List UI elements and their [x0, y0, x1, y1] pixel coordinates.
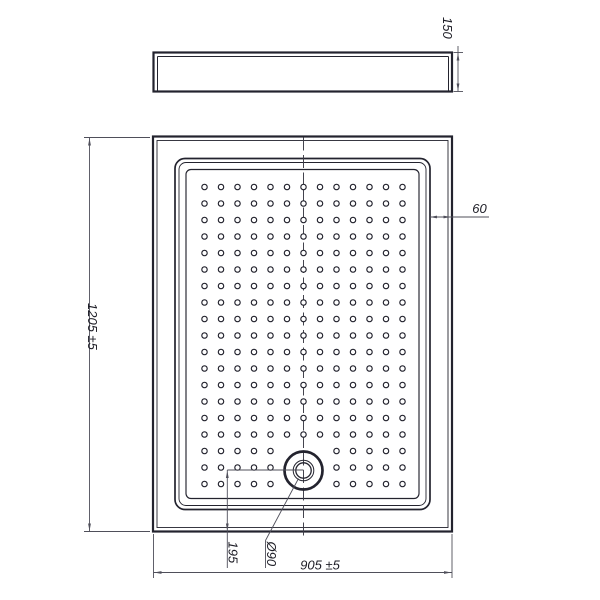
- anti-slip-dot: [202, 250, 207, 255]
- anti-slip-dot: [218, 184, 223, 189]
- anti-slip-dot: [334, 217, 339, 222]
- anti-slip-dot: [235, 399, 240, 404]
- anti-slip-dot: [383, 316, 388, 321]
- anti-slip-dot: [284, 234, 289, 239]
- anti-slip-dot: [268, 465, 273, 470]
- anti-slip-dot: [218, 366, 223, 371]
- anti-slip-dot: [218, 316, 223, 321]
- anti-slip-dot: [350, 382, 355, 387]
- anti-slip-dot: [317, 283, 322, 288]
- anti-slip-dot: [202, 382, 207, 387]
- anti-slip-dot: [251, 432, 256, 437]
- anti-slip-dot: [350, 432, 355, 437]
- length-label: 1205 ±5: [85, 303, 100, 351]
- anti-slip-dot: [268, 234, 273, 239]
- anti-slip-dot: [367, 382, 372, 387]
- anti-slip-dot: [350, 201, 355, 206]
- anti-slip-dot: [268, 349, 273, 354]
- anti-slip-dot: [350, 399, 355, 404]
- anti-slip-dot: [334, 481, 339, 486]
- dimension-905: 905 ±5: [154, 534, 453, 578]
- anti-slip-dot: [284, 366, 289, 371]
- anti-slip-dot: [218, 300, 223, 305]
- anti-slip-dot: [383, 448, 388, 453]
- anti-slip-dot: [235, 333, 240, 338]
- anti-slip-dot: [383, 217, 388, 222]
- anti-slip-dot: [367, 448, 372, 453]
- anti-slip-dot: [301, 432, 306, 437]
- anti-slip-dot: [251, 415, 256, 420]
- anti-slip-dot: [284, 283, 289, 288]
- anti-slip-dot: [334, 366, 339, 371]
- arrowhead-down: [88, 524, 91, 532]
- drain-diameter-label: Ø90: [264, 541, 279, 567]
- anti-slip-dot: [235, 267, 240, 272]
- anti-slip-dot: [268, 415, 273, 420]
- anti-slip-dot: [400, 349, 405, 354]
- anti-slip-dot: [251, 250, 256, 255]
- anti-slip-dot: [317, 250, 322, 255]
- anti-slip-dot: [350, 184, 355, 189]
- anti-slip-dot: [383, 465, 388, 470]
- anti-slip-dot: [218, 432, 223, 437]
- anti-slip-dot: [268, 448, 273, 453]
- anti-slip-dot: [202, 217, 207, 222]
- anti-slip-dot: [383, 250, 388, 255]
- anti-slip-dot: [202, 448, 207, 453]
- anti-slip-dot: [367, 234, 372, 239]
- anti-slip-dot: [334, 415, 339, 420]
- anti-slip-dot: [218, 234, 223, 239]
- anti-slip-dot: [334, 316, 339, 321]
- anti-slip-dot: [202, 432, 207, 437]
- anti-slip-dot: [284, 432, 289, 437]
- anti-slip-dot: [334, 349, 339, 354]
- anti-slip-dot: [202, 465, 207, 470]
- anti-slip-dot: [202, 283, 207, 288]
- anti-slip-dot: [301, 399, 306, 404]
- anti-slip-dot: [301, 201, 306, 206]
- anti-slip-dot: [400, 399, 405, 404]
- anti-slip-dot: [268, 432, 273, 437]
- anti-slip-dot: [235, 415, 240, 420]
- anti-slip-dot: [235, 201, 240, 206]
- anti-slip-dot: [334, 465, 339, 470]
- side-height-label: 150: [440, 17, 455, 39]
- anti-slip-dot: [367, 184, 372, 189]
- anti-slip-dot: [350, 267, 355, 272]
- anti-slip-dot: [367, 300, 372, 305]
- anti-slip-dot: [400, 234, 405, 239]
- anti-slip-dot: [235, 481, 240, 486]
- anti-slip-dot: [235, 283, 240, 288]
- anti-slip-dot: [235, 234, 240, 239]
- anti-slip-dot: [334, 184, 339, 189]
- anti-slip-dot: [367, 316, 372, 321]
- anti-slip-dot: [202, 316, 207, 321]
- anti-slip-dot: [317, 201, 322, 206]
- anti-slip-dot: [284, 349, 289, 354]
- anti-slip-dot: [284, 399, 289, 404]
- anti-slip-dot: [350, 448, 355, 453]
- anti-slip-dot: [284, 184, 289, 189]
- anti-slip-dot: [251, 366, 256, 371]
- anti-slip-dot: [268, 333, 273, 338]
- anti-slip-dot: [400, 300, 405, 305]
- anti-slip-dot: [218, 349, 223, 354]
- anti-slip-dot: [301, 250, 306, 255]
- anti-slip-dot: [202, 481, 207, 486]
- arrowhead-left: [154, 571, 162, 574]
- anti-slip-dot: [317, 184, 322, 189]
- anti-slip-dot: [350, 366, 355, 371]
- anti-slip-dot: [334, 201, 339, 206]
- anti-slip-dot: [218, 399, 223, 404]
- anti-slip-dot: [334, 234, 339, 239]
- anti-slip-dot: [251, 283, 256, 288]
- anti-slip-dot: [251, 481, 256, 486]
- anti-slip-dot: [251, 217, 256, 222]
- anti-slip-dot: [350, 481, 355, 486]
- anti-slip-dot: [367, 283, 372, 288]
- anti-slip-dot: [400, 184, 405, 189]
- anti-slip-dot: [235, 300, 240, 305]
- anti-slip-dot: [317, 217, 322, 222]
- side-view: 150: [154, 17, 464, 92]
- anti-slip-dot: [251, 349, 256, 354]
- anti-slip-dot: [400, 217, 405, 222]
- anti-slip-dot: [268, 267, 273, 272]
- anti-slip-dot: [202, 349, 207, 354]
- anti-slip-dot: [268, 201, 273, 206]
- anti-slip-dot: [235, 184, 240, 189]
- anti-slip-dot: [400, 448, 405, 453]
- side-view-outline: [154, 53, 453, 92]
- anti-slip-dot: [251, 300, 256, 305]
- anti-slip-dot: [251, 382, 256, 387]
- anti-slip-dot: [301, 283, 306, 288]
- anti-slip-dot: [317, 366, 322, 371]
- anti-slip-dot: [268, 481, 273, 486]
- anti-slip-dot: [251, 465, 256, 470]
- anti-slip-dot: [268, 217, 273, 222]
- anti-slip-dot: [350, 415, 355, 420]
- anti-slip-dot: [284, 333, 289, 338]
- anti-slip-dot: [367, 399, 372, 404]
- anti-slip-dot: [350, 234, 355, 239]
- anti-slip-dot: [350, 465, 355, 470]
- anti-slip-dot: [301, 382, 306, 387]
- anti-slip-dot: [235, 448, 240, 453]
- anti-slip-dot: [367, 432, 372, 437]
- anti-slip-dot: [383, 300, 388, 305]
- anti-slip-dot: [268, 184, 273, 189]
- anti-slip-dot: [251, 448, 256, 453]
- anti-slip-dot: [400, 382, 405, 387]
- anti-slip-dot: [251, 399, 256, 404]
- arrowhead-up: [457, 53, 460, 61]
- anti-slip-dot: [301, 366, 306, 371]
- anti-slip-dot: [301, 234, 306, 239]
- anti-slip-dot: [383, 267, 388, 272]
- anti-slip-dot: [350, 349, 355, 354]
- anti-slip-dot: [350, 283, 355, 288]
- anti-slip-dot: [400, 465, 405, 470]
- anti-slip-dot: [334, 399, 339, 404]
- anti-slip-dot: [400, 250, 405, 255]
- arrowhead-up: [88, 138, 91, 146]
- anti-slip-dot: [400, 481, 405, 486]
- anti-slip-dot: [268, 283, 273, 288]
- anti-slip-dot: [202, 201, 207, 206]
- anti-slip-dot: [383, 382, 388, 387]
- rim-width-label: 60: [472, 201, 487, 216]
- technical-drawing-page: 150 1205 ±5: [0, 0, 600, 600]
- anti-slip-dot: [334, 432, 339, 437]
- anti-slip-dot: [367, 333, 372, 338]
- anti-slip-dot: [284, 217, 289, 222]
- anti-slip-dot: [202, 415, 207, 420]
- anti-slip-dot: [268, 366, 273, 371]
- anti-slip-dot: [400, 366, 405, 371]
- drain-offset-label: 195: [226, 542, 241, 564]
- anti-slip-dot: [235, 217, 240, 222]
- anti-slip-dot: [317, 333, 322, 338]
- anti-slip-dot: [284, 382, 289, 387]
- anti-slip-dot: [367, 481, 372, 486]
- anti-slip-dot: [367, 415, 372, 420]
- anti-slip-dot: [334, 333, 339, 338]
- anti-slip-dot: [317, 300, 322, 305]
- anti-slip-dot: [317, 432, 322, 437]
- anti-slip-dot: [268, 382, 273, 387]
- anti-slip-dot: [317, 382, 322, 387]
- anti-slip-dot: [301, 415, 306, 420]
- anti-slip-dot: [218, 267, 223, 272]
- anti-slip-dot: [284, 201, 289, 206]
- anti-slip-dot: [284, 250, 289, 255]
- anti-slip-dot: [400, 283, 405, 288]
- anti-slip-dot: [317, 234, 322, 239]
- anti-slip-dot: [383, 184, 388, 189]
- anti-slip-dot: [301, 184, 306, 189]
- anti-slip-dot: [383, 366, 388, 371]
- anti-slip-dot: [317, 316, 322, 321]
- anti-slip-dot: [251, 184, 256, 189]
- anti-slip-dot: [235, 316, 240, 321]
- anti-slip-dot: [284, 316, 289, 321]
- anti-slip-dot: [218, 481, 223, 486]
- anti-slip-dot: [334, 283, 339, 288]
- anti-slip-dot: [218, 382, 223, 387]
- anti-slip-dot: [383, 283, 388, 288]
- anti-slip-dot: [202, 184, 207, 189]
- anti-slip-dot: [367, 366, 372, 371]
- anti-slip-dot: [235, 382, 240, 387]
- anti-slip-dot: [317, 267, 322, 272]
- anti-slip-dot: [268, 300, 273, 305]
- anti-slip-dot: [383, 399, 388, 404]
- anti-slip-dot: [350, 316, 355, 321]
- anti-slip-dot: [383, 333, 388, 338]
- anti-slip-dot: [235, 349, 240, 354]
- anti-slip-dot: [400, 316, 405, 321]
- anti-slip-dot: [350, 250, 355, 255]
- anti-slip-dot: [334, 250, 339, 255]
- anti-slip-dot: [301, 349, 306, 354]
- anti-slip-dot: [301, 300, 306, 305]
- anti-slip-dot: [367, 250, 372, 255]
- plan-view: 1205 ±5 60 195 Ø90: [84, 137, 489, 579]
- anti-slip-dot: [284, 415, 289, 420]
- anti-slip-dot: [235, 432, 240, 437]
- anti-slip-dot: [235, 465, 240, 470]
- anti-slip-dot: [218, 333, 223, 338]
- anti-slip-dot: [350, 300, 355, 305]
- anti-slip-dot: [235, 250, 240, 255]
- anti-slip-dot: [383, 201, 388, 206]
- anti-slip-dot: [383, 349, 388, 354]
- anti-slip-dot: [284, 300, 289, 305]
- anti-slip-dot: [268, 399, 273, 404]
- anti-slip-dot: [301, 267, 306, 272]
- anti-slip-dot: [251, 333, 256, 338]
- anti-slip-dot: [383, 415, 388, 420]
- anti-slip-dot: [218, 250, 223, 255]
- anti-slip-dot: [268, 316, 273, 321]
- anti-slip-dot: [202, 267, 207, 272]
- anti-slip-dot: [301, 217, 306, 222]
- arrowhead-down: [457, 84, 460, 92]
- arrowhead-right: [444, 571, 452, 574]
- anti-slip-dot: [251, 201, 256, 206]
- anti-slip-dot: [334, 267, 339, 272]
- anti-slip-dot: [317, 399, 322, 404]
- technical-drawing-canvas: 150 1205 ±5: [0, 0, 600, 600]
- anti-slip-dot: [383, 432, 388, 437]
- anti-slip-dot: [400, 333, 405, 338]
- anti-slip-dot: [218, 415, 223, 420]
- anti-slip-dot: [334, 448, 339, 453]
- anti-slip-dot: [218, 283, 223, 288]
- anti-slip-dot: [251, 316, 256, 321]
- anti-slip-dot: [202, 399, 207, 404]
- anti-slip-dot: [218, 448, 223, 453]
- anti-slip-dot: [251, 267, 256, 272]
- anti-slip-dot: [367, 349, 372, 354]
- dimension-1205: 1205 ±5: [84, 138, 150, 532]
- anti-slip-dot: [317, 349, 322, 354]
- anti-slip-dot: [202, 333, 207, 338]
- anti-slip-dot: [367, 465, 372, 470]
- anti-slip-dot: [334, 300, 339, 305]
- anti-slip-dot: [218, 217, 223, 222]
- anti-slip-dot: [301, 333, 306, 338]
- anti-slip-dot: [400, 201, 405, 206]
- anti-slip-dot: [251, 234, 256, 239]
- anti-slip-dot: [400, 432, 405, 437]
- anti-slip-dot: [202, 300, 207, 305]
- anti-slip-dot: [202, 234, 207, 239]
- anti-slip-dot: [218, 201, 223, 206]
- width-label: 905 ±5: [300, 558, 340, 573]
- anti-slip-dot: [400, 415, 405, 420]
- anti-slip-dot: [334, 382, 339, 387]
- anti-slip-dot: [202, 366, 207, 371]
- anti-slip-dot: [383, 481, 388, 486]
- anti-slip-dot: [383, 234, 388, 239]
- anti-slip-dot: [400, 267, 405, 272]
- anti-slip-dot: [367, 201, 372, 206]
- anti-slip-dot: [284, 267, 289, 272]
- anti-slip-dot: [268, 250, 273, 255]
- anti-slip-dot: [367, 267, 372, 272]
- anti-slip-dot: [367, 217, 372, 222]
- anti-slip-dot: [317, 415, 322, 420]
- anti-slip-dot: [301, 316, 306, 321]
- anti-slip-dot: [350, 217, 355, 222]
- anti-slip-dot: [235, 366, 240, 371]
- anti-slip-dot: [218, 465, 223, 470]
- anti-slip-dot: [350, 333, 355, 338]
